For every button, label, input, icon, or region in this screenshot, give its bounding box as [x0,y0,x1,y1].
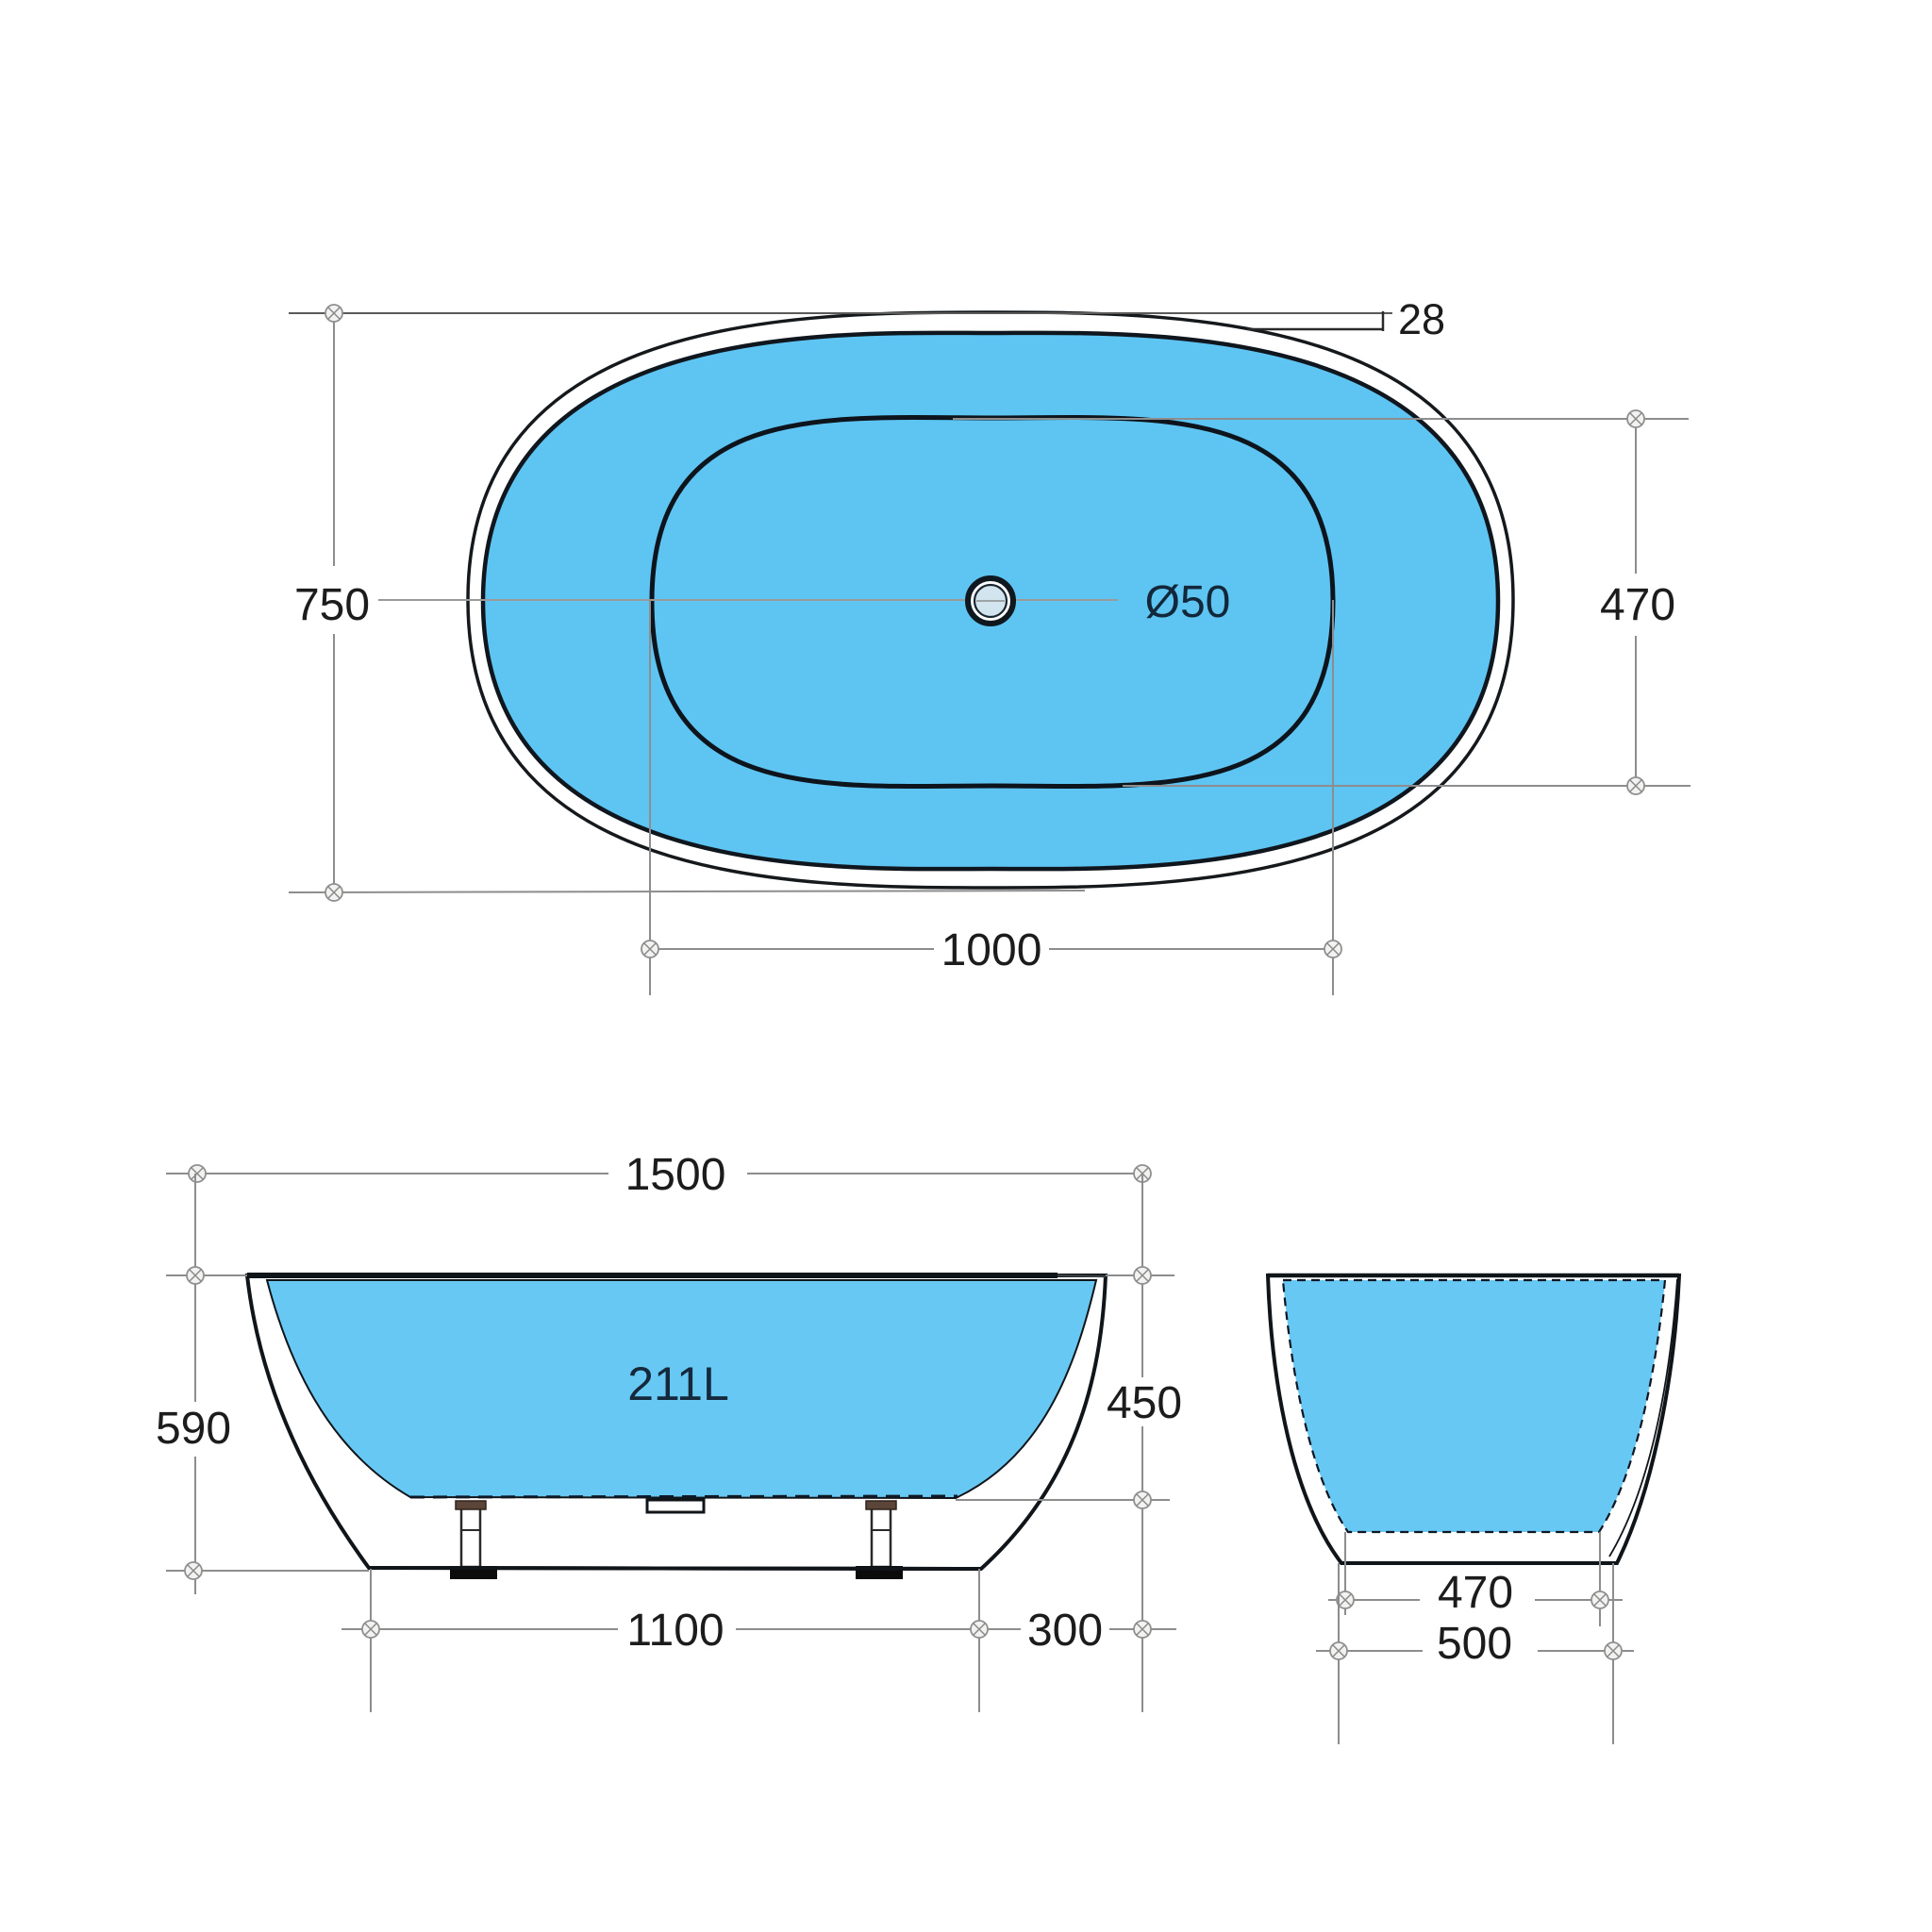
svg-text:750: 750 [294,580,370,630]
svg-text:1100: 1100 [626,1606,724,1656]
svg-text:300: 300 [1027,1606,1103,1656]
svg-text:590: 590 [156,1404,231,1454]
svg-text:211L: 211L [627,1357,729,1410]
svg-text:500: 500 [1437,1619,1512,1669]
svg-text:470: 470 [1600,580,1675,630]
svg-text:1000: 1000 [941,925,1042,975]
svg-text:450: 450 [1107,1378,1182,1428]
svg-text:28: 28 [1398,295,1445,343]
svg-text:1500: 1500 [625,1150,726,1200]
svg-text:Ø50: Ø50 [1145,577,1231,627]
svg-text:470: 470 [1438,1568,1513,1618]
